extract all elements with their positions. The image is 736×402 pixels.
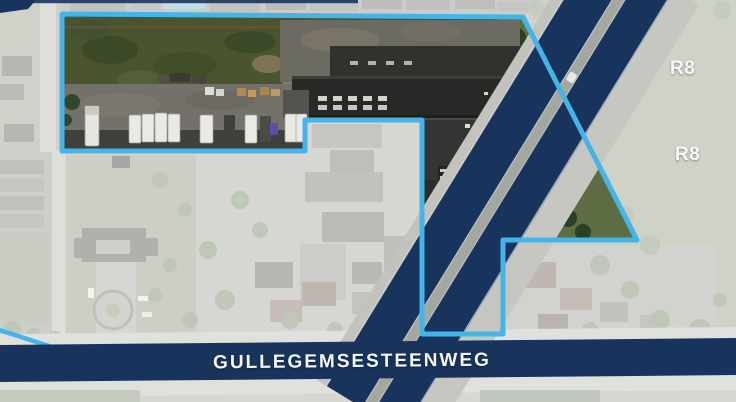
r8-label-lower: R8 <box>675 144 700 166</box>
satellite-image <box>0 0 736 402</box>
aerial-property-map: R8 R8 GULLEGEMSESTEENWEG <box>0 0 736 402</box>
street-name-label: GULLEGEMSESTEENWEG <box>213 350 491 375</box>
top-road-strip <box>0 0 358 3</box>
purple-container <box>270 123 278 135</box>
r8-label-upper: R8 <box>670 58 695 80</box>
